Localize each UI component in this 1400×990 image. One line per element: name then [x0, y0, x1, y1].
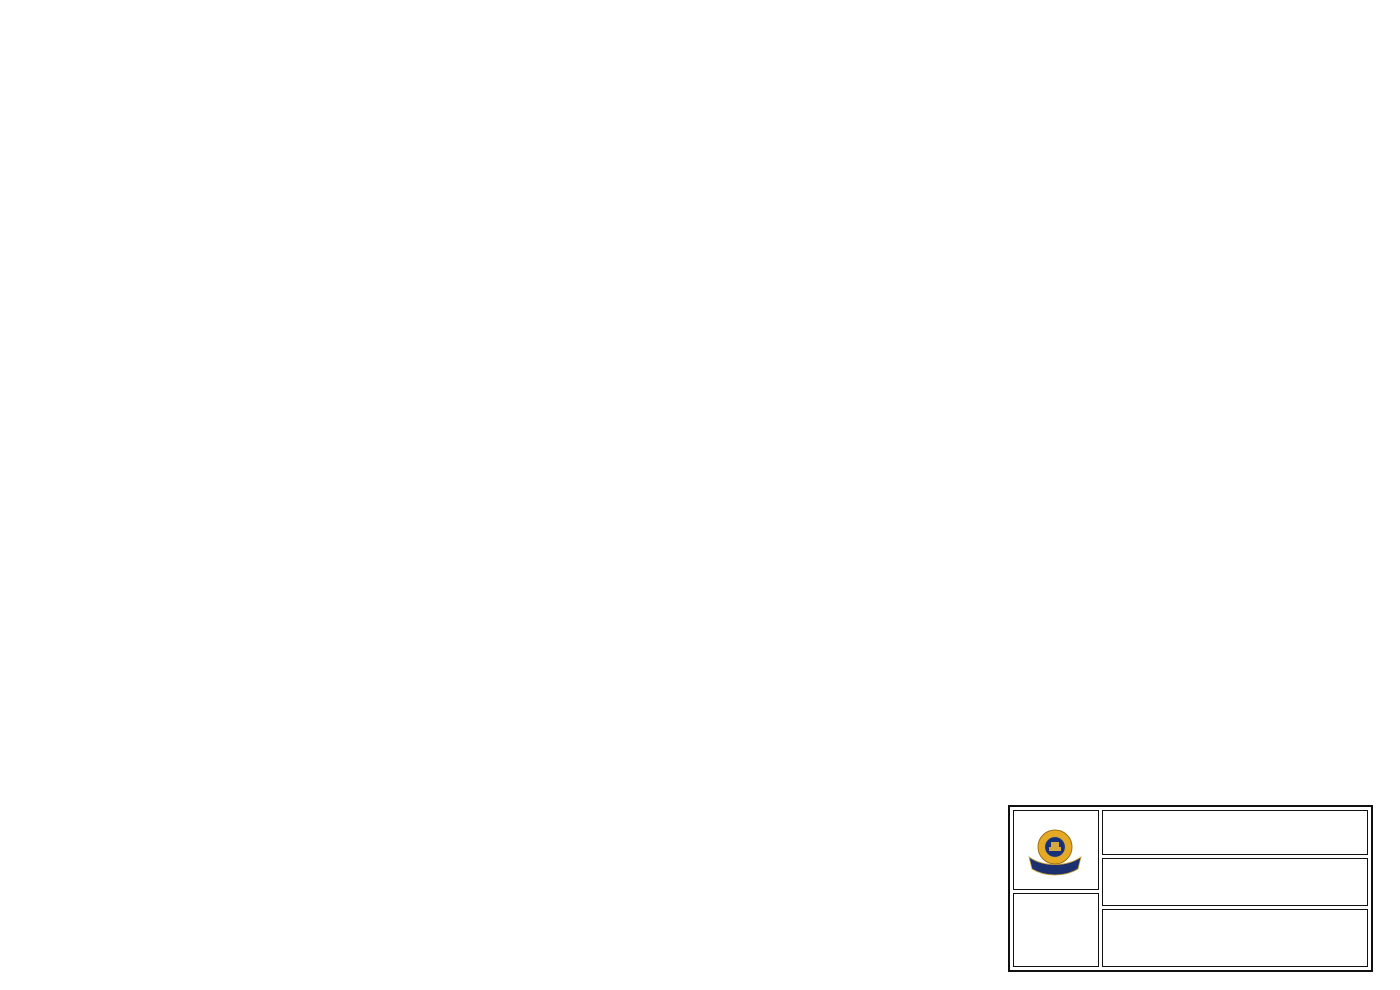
legend-route-cell	[1102, 909, 1368, 967]
legend-box	[1008, 805, 1373, 972]
legend-event-cell	[1102, 858, 1368, 906]
marathon-map-page	[0, 0, 1400, 990]
compass-rose-icon	[1014, 894, 1096, 964]
legend-title-cell	[1102, 810, 1368, 855]
compass-cell	[1013, 893, 1099, 967]
police-badge-cell	[1013, 810, 1099, 890]
route-line-swatch	[1198, 935, 1256, 942]
badge-castle-base	[1049, 847, 1061, 851]
police-badge-logo	[1014, 811, 1096, 887]
